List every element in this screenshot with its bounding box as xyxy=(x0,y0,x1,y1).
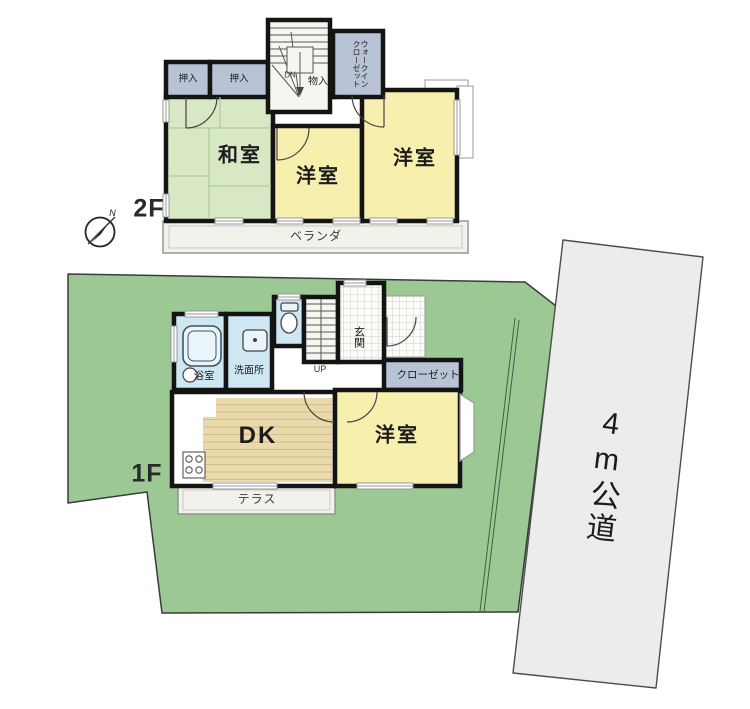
room-label-oshiire-left: 押入 xyxy=(178,75,197,86)
entrance-porch xyxy=(386,296,425,357)
bathtub-icon xyxy=(183,326,221,366)
stairs-down-label: DN xyxy=(284,70,296,79)
bay-window-1f xyxy=(460,394,474,461)
veranda-label: ベランダ xyxy=(290,230,342,244)
terrace-label: テラス xyxy=(238,493,277,507)
sink-icon xyxy=(243,330,267,351)
floor-plan-drawing xyxy=(0,0,750,709)
compass-icon xyxy=(86,217,116,247)
floor1-label: 1F xyxy=(131,460,162,489)
room-label-youshitsu-center: 洋室 xyxy=(296,166,340,189)
room-label-closet: クローゼット xyxy=(397,369,460,381)
room-label-walk-in-closet: ウォークイン クローゼット xyxy=(352,40,368,88)
compass-north-label: N xyxy=(109,208,117,218)
room-label-dk: DK xyxy=(239,422,278,450)
stairs-up-label: UP xyxy=(314,364,327,374)
room-label-washroom: 洗面所 xyxy=(234,365,264,377)
room-label-bath: 浴室 xyxy=(194,370,215,382)
room-washroom xyxy=(226,314,272,390)
room-label-entrance: 玄関 xyxy=(353,326,364,348)
floor2-plan xyxy=(163,20,473,253)
floor2-label: 2F xyxy=(133,195,164,224)
room-label-youshitsu-right: 洋室 xyxy=(393,148,437,171)
floor-plan-page: 2F 1F N 押入 押入 DN 物入 ウォークイン クローゼット 和室 洋室 … xyxy=(0,0,750,709)
stove-icon xyxy=(183,452,205,478)
toilet-icon xyxy=(281,303,298,333)
room-entrance xyxy=(338,283,384,362)
room-label-monoire: 物入 xyxy=(308,76,328,88)
room-label-washitsu: 和室 xyxy=(218,145,262,168)
room-label-youshitsu-1f: 洋室 xyxy=(375,425,419,448)
room-label-oshiire-right: 押入 xyxy=(229,75,248,86)
